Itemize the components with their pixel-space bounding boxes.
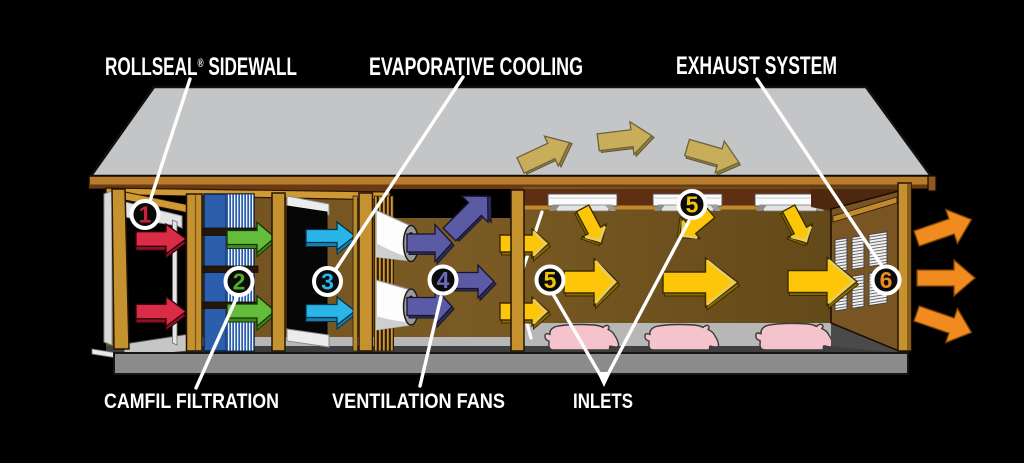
svg-text:2: 2: [233, 269, 246, 295]
svg-text:INLETS: INLETS: [573, 390, 633, 413]
svg-text:4: 4: [437, 267, 450, 293]
svg-text:5: 5: [686, 192, 699, 218]
svg-text:6: 6: [880, 267, 893, 293]
svg-text:CAMFIL FILTRATION: CAMFIL FILTRATION: [104, 390, 279, 413]
svg-text:5: 5: [544, 267, 557, 293]
svg-text:1: 1: [139, 202, 152, 228]
svg-text:EXHAUST SYSTEM: EXHAUST SYSTEM: [676, 52, 837, 80]
svg-text:VENTILATION FANS: VENTILATION FANS: [332, 390, 505, 413]
svg-text:3: 3: [321, 269, 334, 295]
svg-text:EVAPORATIVE COOLING: EVAPORATIVE COOLING: [369, 53, 583, 81]
